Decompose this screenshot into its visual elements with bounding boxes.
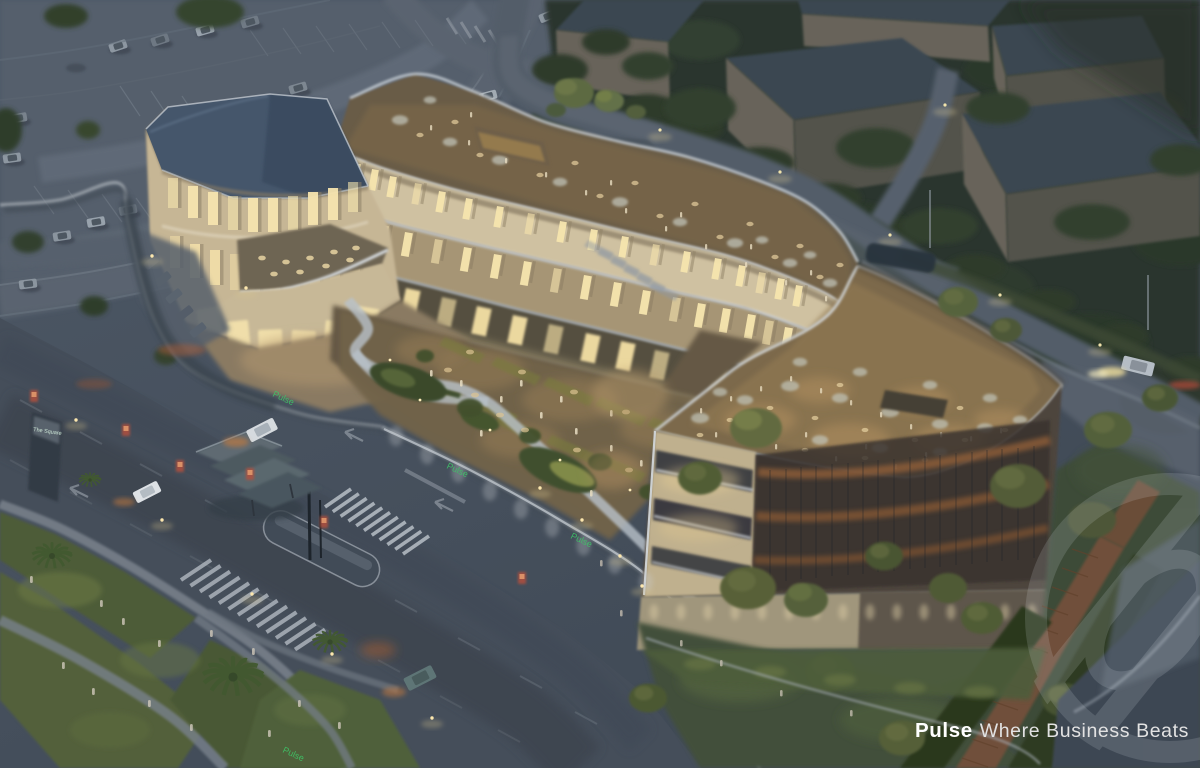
- svg-text:PulseWhere Business Beats: PulseWhere Business Beats: [915, 719, 1189, 742]
